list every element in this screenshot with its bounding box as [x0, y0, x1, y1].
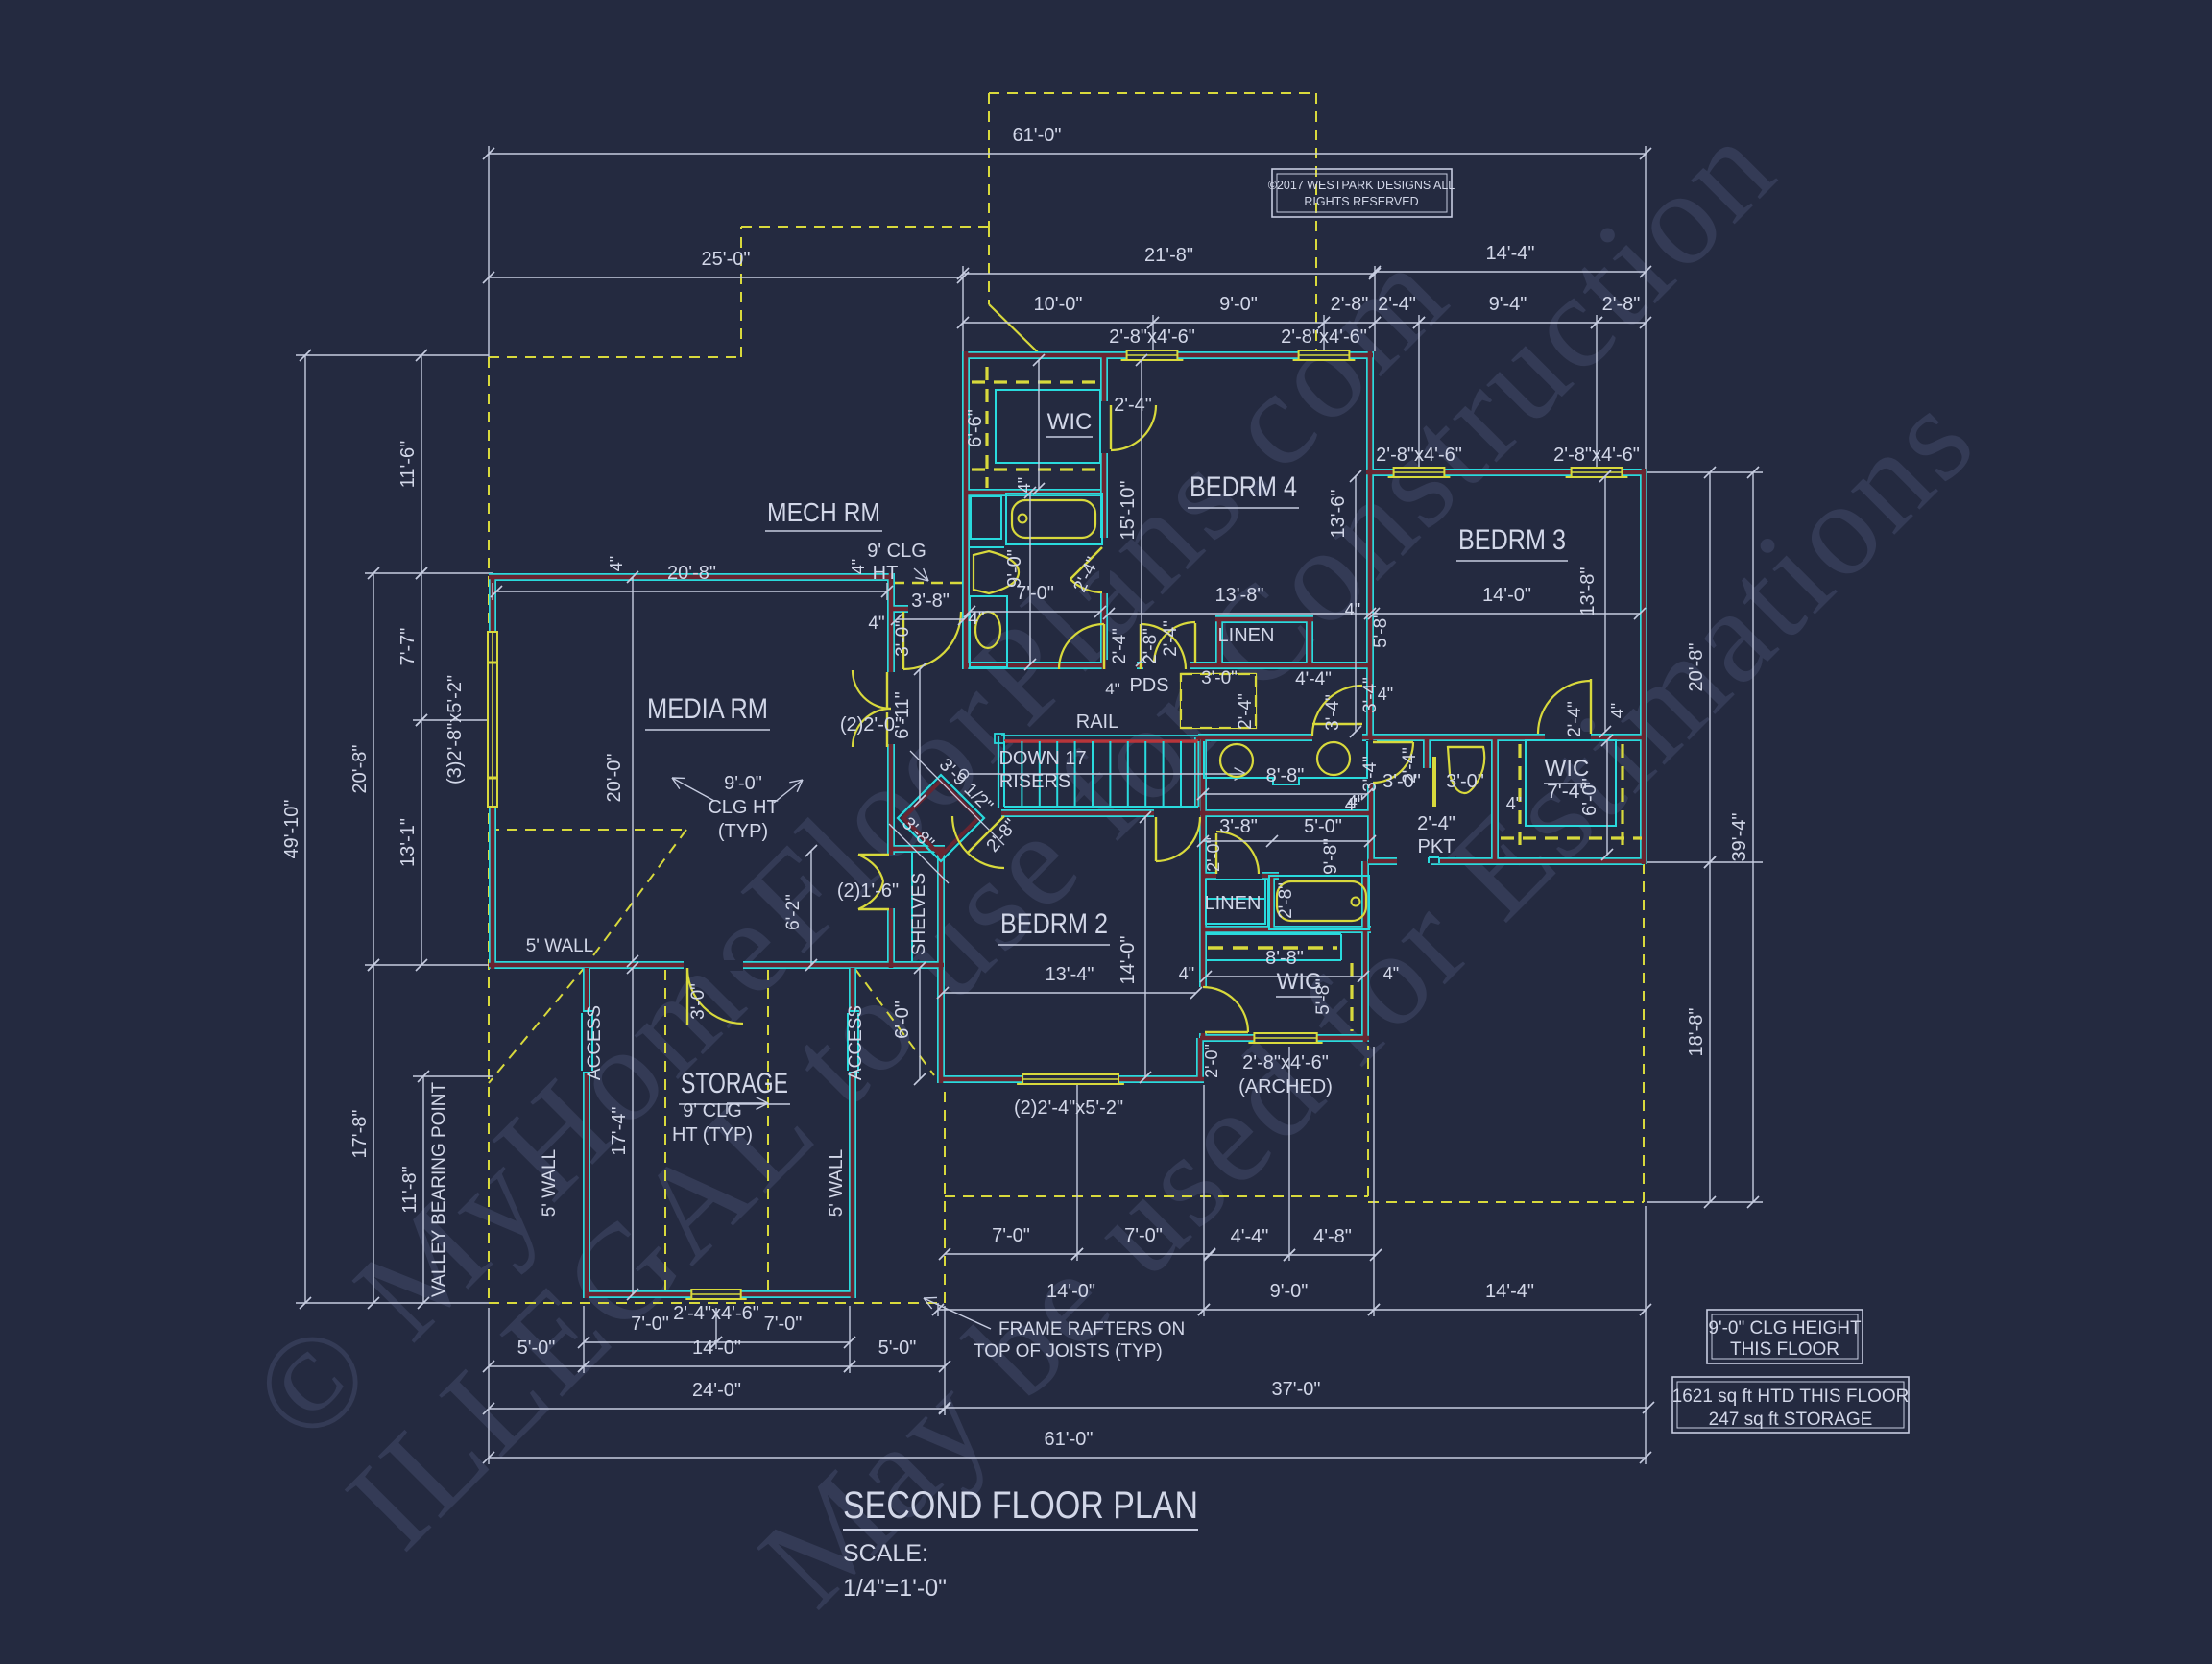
svg-text:9'-8": 9'-8" [1321, 838, 1341, 875]
svg-text:2'-8"x4'-6": 2'-8"x4'-6" [1553, 445, 1640, 466]
svg-text:14'-0": 14'-0" [1118, 936, 1139, 985]
svg-text:5' WALL: 5' WALL [540, 1149, 560, 1218]
svg-text:4": 4" [1345, 600, 1360, 619]
svg-text:4": 4" [1506, 794, 1522, 813]
svg-text:3'-8": 3'-8" [1219, 816, 1258, 837]
svg-text:THIS FLOOR: THIS FLOOR [1730, 1339, 1839, 1360]
svg-text:10'-0": 10'-0" [1034, 294, 1083, 315]
svg-text:4": 4" [1015, 477, 1034, 493]
svg-text:39'-4": 39'-4" [1729, 813, 1750, 862]
svg-text:2'-8"x4'-6": 2'-8"x4'-6" [1242, 1052, 1329, 1073]
svg-text:2'-0": 2'-0" [1202, 1044, 1221, 1078]
svg-text:5'-0": 5'-0" [1304, 816, 1342, 837]
svg-text:13'-8": 13'-8" [1577, 567, 1599, 616]
svg-text:LINEN: LINEN [1205, 893, 1262, 914]
svg-text:4": 4" [968, 609, 984, 629]
svg-text:4'-4": 4'-4" [1231, 1226, 1269, 1247]
svg-text:4": 4" [1345, 795, 1360, 814]
svg-text:5'-0": 5'-0" [517, 1338, 556, 1359]
svg-text:4": 4" [868, 614, 884, 634]
svg-text:7'-0": 7'-0" [992, 1225, 1030, 1246]
svg-text:7'-0": 7'-0" [631, 1314, 669, 1335]
svg-text:CLG HT: CLG HT [708, 797, 778, 818]
svg-text:RIGHTS RESERVED: RIGHTS RESERVED [1304, 195, 1418, 208]
svg-text:1/4"=1'-0": 1/4"=1'-0" [843, 1575, 947, 1602]
svg-text:2'-4": 2'-4" [1161, 620, 1181, 657]
svg-text:2'-4": 2'-4" [1236, 693, 1256, 730]
svg-text:25'-0": 25'-0" [702, 249, 751, 270]
svg-text:9'-0": 9'-0" [1270, 1281, 1309, 1302]
svg-text:1621 sq ft HTD THIS FLOOR: 1621 sq ft HTD THIS FLOOR [1672, 1387, 1910, 1407]
svg-text:2'-0": 2'-0" [1204, 837, 1223, 872]
svg-text:4'-4": 4'-4" [1295, 669, 1332, 689]
svg-text:WIC: WIC [1545, 756, 1590, 782]
svg-text:9'-4": 9'-4" [1489, 294, 1527, 315]
svg-text:61'-0": 61'-0" [1013, 125, 1062, 146]
svg-text:4": 4" [1378, 685, 1393, 704]
svg-text:4": 4" [1105, 680, 1120, 698]
svg-text:2'-8"x4'-6": 2'-8"x4'-6" [1376, 445, 1462, 466]
svg-text:4'-8": 4'-8" [1313, 1226, 1352, 1247]
svg-text:PDS: PDS [1129, 675, 1168, 696]
svg-text:9'-0": 9'-0" [1219, 294, 1258, 315]
svg-text:3'-8": 3'-8" [911, 591, 950, 612]
svg-text:2'-4": 2'-4" [1110, 628, 1130, 664]
svg-text:11'-8": 11'-8" [399, 1166, 421, 1213]
svg-text:14'-4": 14'-4" [1485, 1281, 1534, 1302]
svg-text:BEDRM 2: BEDRM 2 [1000, 908, 1108, 940]
svg-text:3'-4": 3'-4" [1360, 756, 1381, 792]
svg-text:MECH RM: MECH RM [767, 497, 880, 527]
svg-text:37'-0": 37'-0" [1272, 1379, 1321, 1400]
svg-text:8'-8": 8'-8" [1266, 765, 1305, 786]
svg-text:13'-6": 13'-6" [1328, 490, 1349, 539]
svg-text:7'-0": 7'-0" [1016, 583, 1054, 604]
svg-text:4": 4" [607, 556, 626, 571]
svg-text:DOWN 17: DOWN 17 [998, 748, 1086, 769]
svg-text:9' CLG: 9' CLG [867, 541, 926, 562]
svg-text:WIC: WIC [1047, 409, 1093, 435]
svg-text:3'-0": 3'-0" [688, 983, 709, 1020]
svg-text:18'-8": 18'-8" [1686, 1008, 1707, 1057]
svg-text:7'-0": 7'-0" [1124, 1225, 1163, 1246]
svg-text:5'-8": 5'-8" [1313, 978, 1334, 1015]
svg-text:(ARCHED): (ARCHED) [1238, 1076, 1333, 1097]
svg-text:ACCESS: ACCESS [585, 1005, 605, 1080]
svg-text:24'-0": 24'-0" [692, 1380, 741, 1401]
svg-text:5' WALL: 5' WALL [526, 936, 594, 956]
svg-text:BEDRM 4: BEDRM 4 [1190, 471, 1297, 503]
svg-text:17'-8": 17'-8" [349, 1110, 371, 1159]
svg-text:5' WALL: 5' WALL [827, 1149, 847, 1218]
svg-text:RAIL: RAIL [1076, 711, 1118, 733]
svg-text:2'-8": 2'-8" [1602, 294, 1641, 315]
svg-text:61'-0": 61'-0" [1045, 1429, 1094, 1450]
svg-text:3'-0": 3'-0" [1201, 668, 1238, 688]
svg-text:7'-7": 7'-7" [397, 628, 419, 666]
svg-text:49'-10": 49'-10" [281, 799, 302, 858]
svg-text:TOP OF JOISTS (TYP): TOP OF JOISTS (TYP) [974, 1341, 1163, 1362]
svg-text:2'-4": 2'-4" [1378, 294, 1416, 315]
svg-text:SHELVES: SHELVES [909, 873, 929, 955]
svg-text:6'-0": 6'-0" [892, 1001, 913, 1039]
svg-text:4": 4" [849, 559, 868, 574]
svg-text:BEDRM 3: BEDRM 3 [1458, 524, 1566, 556]
svg-text:14'-0": 14'-0" [1482, 585, 1531, 606]
svg-text:5'-8": 5'-8" [1371, 612, 1391, 648]
svg-text:13'-8": 13'-8" [1215, 585, 1264, 606]
svg-text:2'-4": 2'-4" [1565, 701, 1585, 737]
svg-text:4": 4" [1608, 703, 1627, 718]
svg-text:5'-0": 5'-0" [878, 1338, 917, 1359]
svg-text:3'-0": 3'-0" [1446, 771, 1484, 792]
svg-text:SCALE:: SCALE: [843, 1540, 928, 1567]
svg-text:HT (TYP): HT (TYP) [672, 1124, 753, 1146]
svg-text:13'-1": 13'-1" [397, 818, 419, 867]
svg-text:PKT: PKT [1418, 836, 1455, 857]
svg-text:6'-6": 6'-6" [965, 409, 986, 447]
svg-text:4": 4" [1383, 964, 1399, 983]
svg-text:2'-4"x4'-6": 2'-4"x4'-6" [673, 1303, 759, 1324]
svg-text:3'-4": 3'-4" [1323, 694, 1343, 731]
svg-text:15'-10": 15'-10" [1118, 480, 1139, 540]
svg-text:13'-4": 13'-4" [1046, 964, 1094, 985]
svg-text:8'-8": 8'-8" [1265, 948, 1304, 969]
svg-text:20'-8": 20'-8" [667, 563, 716, 584]
svg-text:MEDIA RM: MEDIA RM [647, 693, 768, 725]
svg-text:14'-0": 14'-0" [1046, 1281, 1095, 1302]
svg-text:FRAME RAFTERS ON: FRAME RAFTERS ON [998, 1319, 1185, 1339]
svg-text:9'-0": 9'-0" [724, 773, 762, 794]
svg-text:(2)1'-6": (2)1'-6" [837, 880, 899, 902]
svg-text:17'-4": 17'-4" [609, 1107, 630, 1156]
svg-text:6'-11": 6'-11" [892, 691, 913, 738]
svg-text:6'-2": 6'-2" [783, 894, 804, 930]
svg-text:14'-4": 14'-4" [1486, 243, 1535, 264]
svg-text:2'-8": 2'-8" [1141, 628, 1161, 664]
svg-text:(2)2'-4"x5'-2": (2)2'-4"x5'-2" [1014, 1097, 1123, 1119]
svg-text:2'-8": 2'-8" [1276, 882, 1296, 919]
svg-text:20'-8": 20'-8" [349, 745, 371, 794]
svg-text:4": 4" [1179, 964, 1194, 983]
svg-text:RISERS: RISERS [999, 771, 1070, 792]
svg-text:2'-4": 2'-4" [1417, 813, 1455, 834]
svg-text:11'-6": 11'-6" [397, 441, 419, 488]
svg-text:9'-0" CLG HEIGHT: 9'-0" CLG HEIGHT [1708, 1318, 1862, 1338]
svg-text:©2017 WESTPARK DESIGNS ALL: ©2017 WESTPARK DESIGNS ALL [1268, 179, 1455, 192]
svg-text:20'-8": 20'-8" [1686, 643, 1707, 692]
svg-text:3'-0": 3'-0" [893, 620, 913, 657]
svg-text:2'-8"x4'-6": 2'-8"x4'-6" [1109, 326, 1195, 348]
svg-text:2'-4": 2'-4" [1400, 747, 1420, 784]
svg-text:2'-8"x4'-6": 2'-8"x4'-6" [1281, 326, 1367, 348]
svg-text:(3)2'-8"x5'-2": (3)2'-8"x5'-2" [445, 675, 466, 784]
svg-text:247 sq ft STORAGE: 247 sq ft STORAGE [1709, 1410, 1873, 1430]
svg-text:VALLEY BEARING POINT: VALLEY BEARING POINT [429, 1082, 449, 1298]
svg-text:ACCESS: ACCESS [846, 1005, 866, 1080]
svg-text:(TYP): (TYP) [718, 821, 768, 842]
svg-text:6'-0": 6'-0" [1579, 778, 1600, 816]
svg-text:9'-0": 9'-0" [1004, 549, 1025, 588]
svg-text:2'-4": 2'-4" [1114, 395, 1152, 416]
svg-text:20'-0": 20'-0" [604, 754, 625, 803]
svg-text:STORAGE: STORAGE [681, 1068, 788, 1099]
svg-text:2'-8": 2'-8" [1331, 294, 1369, 315]
svg-text:21'-8": 21'-8" [1144, 245, 1193, 266]
svg-text:SECOND FLOOR PLAN: SECOND FLOOR PLAN [843, 1484, 1198, 1527]
svg-text:7'-0": 7'-0" [764, 1314, 803, 1335]
svg-text:LINEN: LINEN [1218, 625, 1275, 646]
svg-text:HT: HT [873, 563, 899, 584]
